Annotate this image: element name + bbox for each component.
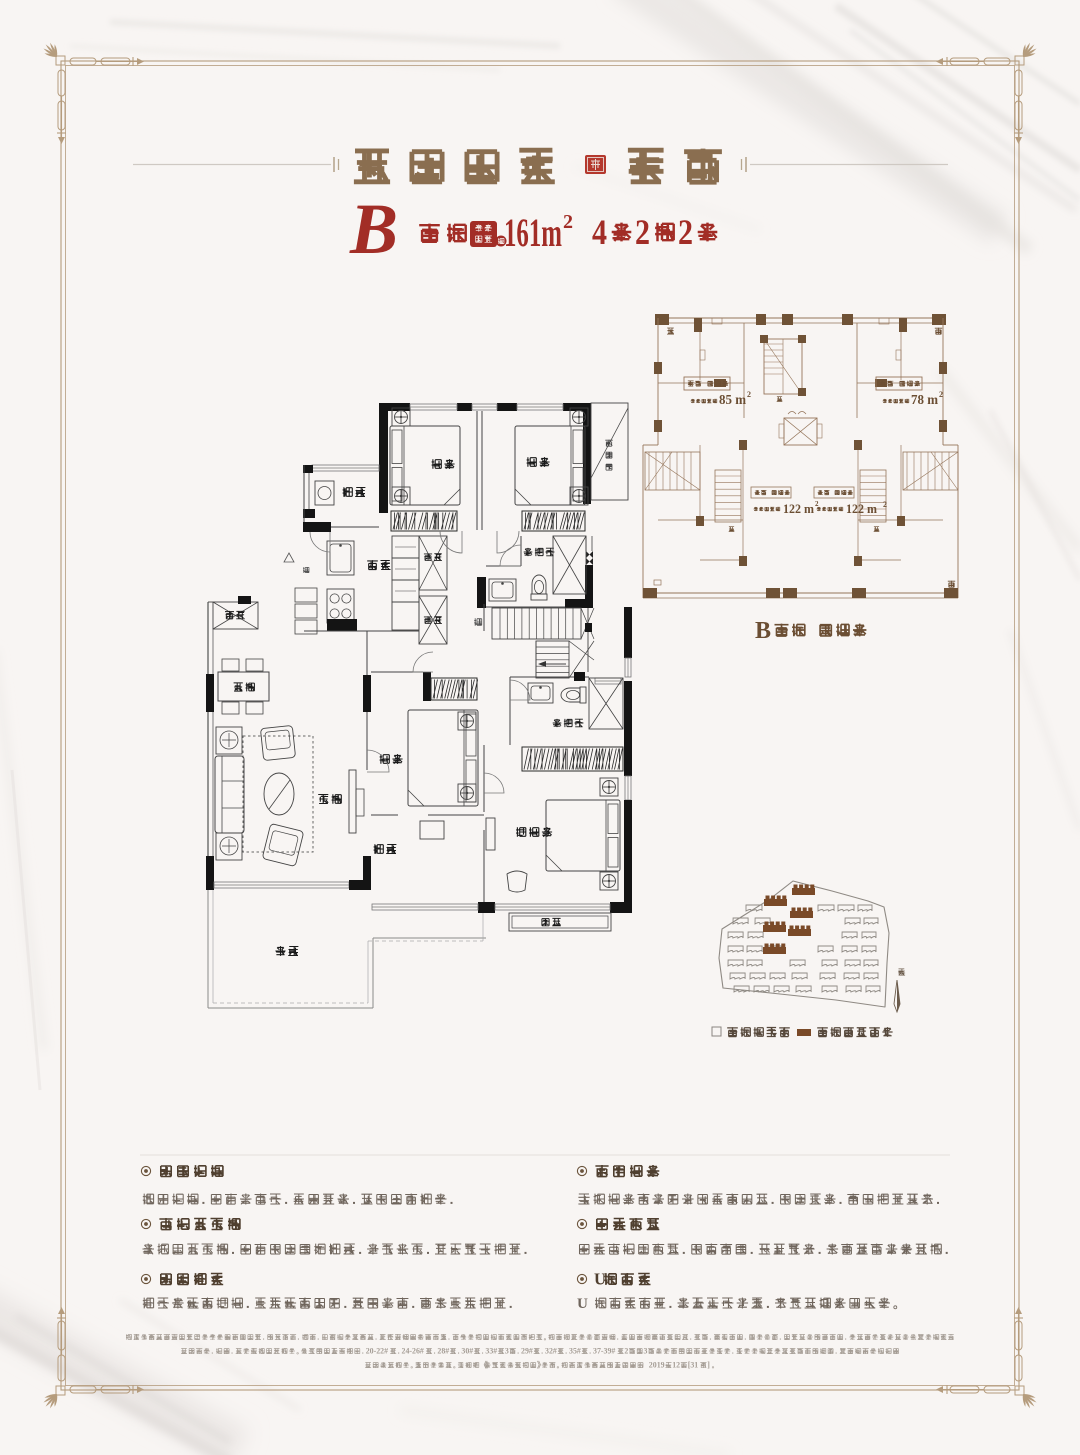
svg-text:B: B bbox=[755, 618, 771, 644]
svg-text:《: 《 bbox=[480, 1360, 488, 1370]
svg-text:2: 2 bbox=[939, 390, 943, 399]
svg-text:122 m: 122 m bbox=[846, 501, 877, 516]
svg-text:24-26#: 24-26# bbox=[402, 1347, 424, 1356]
svg-text:U: U bbox=[577, 1296, 588, 1312]
svg-text:32#: 32# bbox=[545, 1347, 557, 1356]
svg-text:》: 》 bbox=[537, 1360, 545, 1370]
svg-text:2: 2 bbox=[815, 500, 819, 508]
svg-text:2: 2 bbox=[563, 211, 573, 233]
svg-text:2019: 2019 bbox=[649, 1361, 665, 1370]
svg-text:85 m: 85 m bbox=[719, 393, 746, 408]
svg-text:B: B bbox=[349, 189, 398, 269]
svg-text:78 m: 78 m bbox=[911, 393, 938, 408]
svg-text:12: 12 bbox=[672, 1361, 680, 1370]
svg-text:20-22#: 20-22# bbox=[366, 1347, 388, 1356]
svg-text:U: U bbox=[594, 1269, 606, 1288]
svg-text:161m: 161m bbox=[504, 210, 562, 255]
svg-text:2: 2 bbox=[747, 390, 751, 399]
svg-text:35#: 35# bbox=[569, 1347, 581, 1356]
svg-text:30#: 30# bbox=[461, 1347, 473, 1356]
svg-text:28#: 28# bbox=[437, 1347, 449, 1356]
svg-text:3: 3 bbox=[505, 1347, 509, 1356]
svg-text:29#: 29# bbox=[521, 1347, 533, 1356]
svg-text:37-39#: 37-39# bbox=[593, 1347, 615, 1356]
svg-text:2: 2 bbox=[678, 212, 693, 252]
svg-text:33#: 33# bbox=[485, 1347, 497, 1356]
svg-text:122 m: 122 m bbox=[783, 501, 814, 516]
svg-text:]: ] bbox=[707, 1361, 710, 1370]
svg-text:4: 4 bbox=[592, 212, 607, 252]
svg-text:[31: [31 bbox=[688, 1361, 699, 1370]
svg-text:2: 2 bbox=[635, 212, 650, 252]
svg-text:3: 3 bbox=[644, 1347, 648, 1356]
svg-text:2: 2 bbox=[624, 1347, 628, 1356]
svg-text:2: 2 bbox=[883, 500, 887, 509]
